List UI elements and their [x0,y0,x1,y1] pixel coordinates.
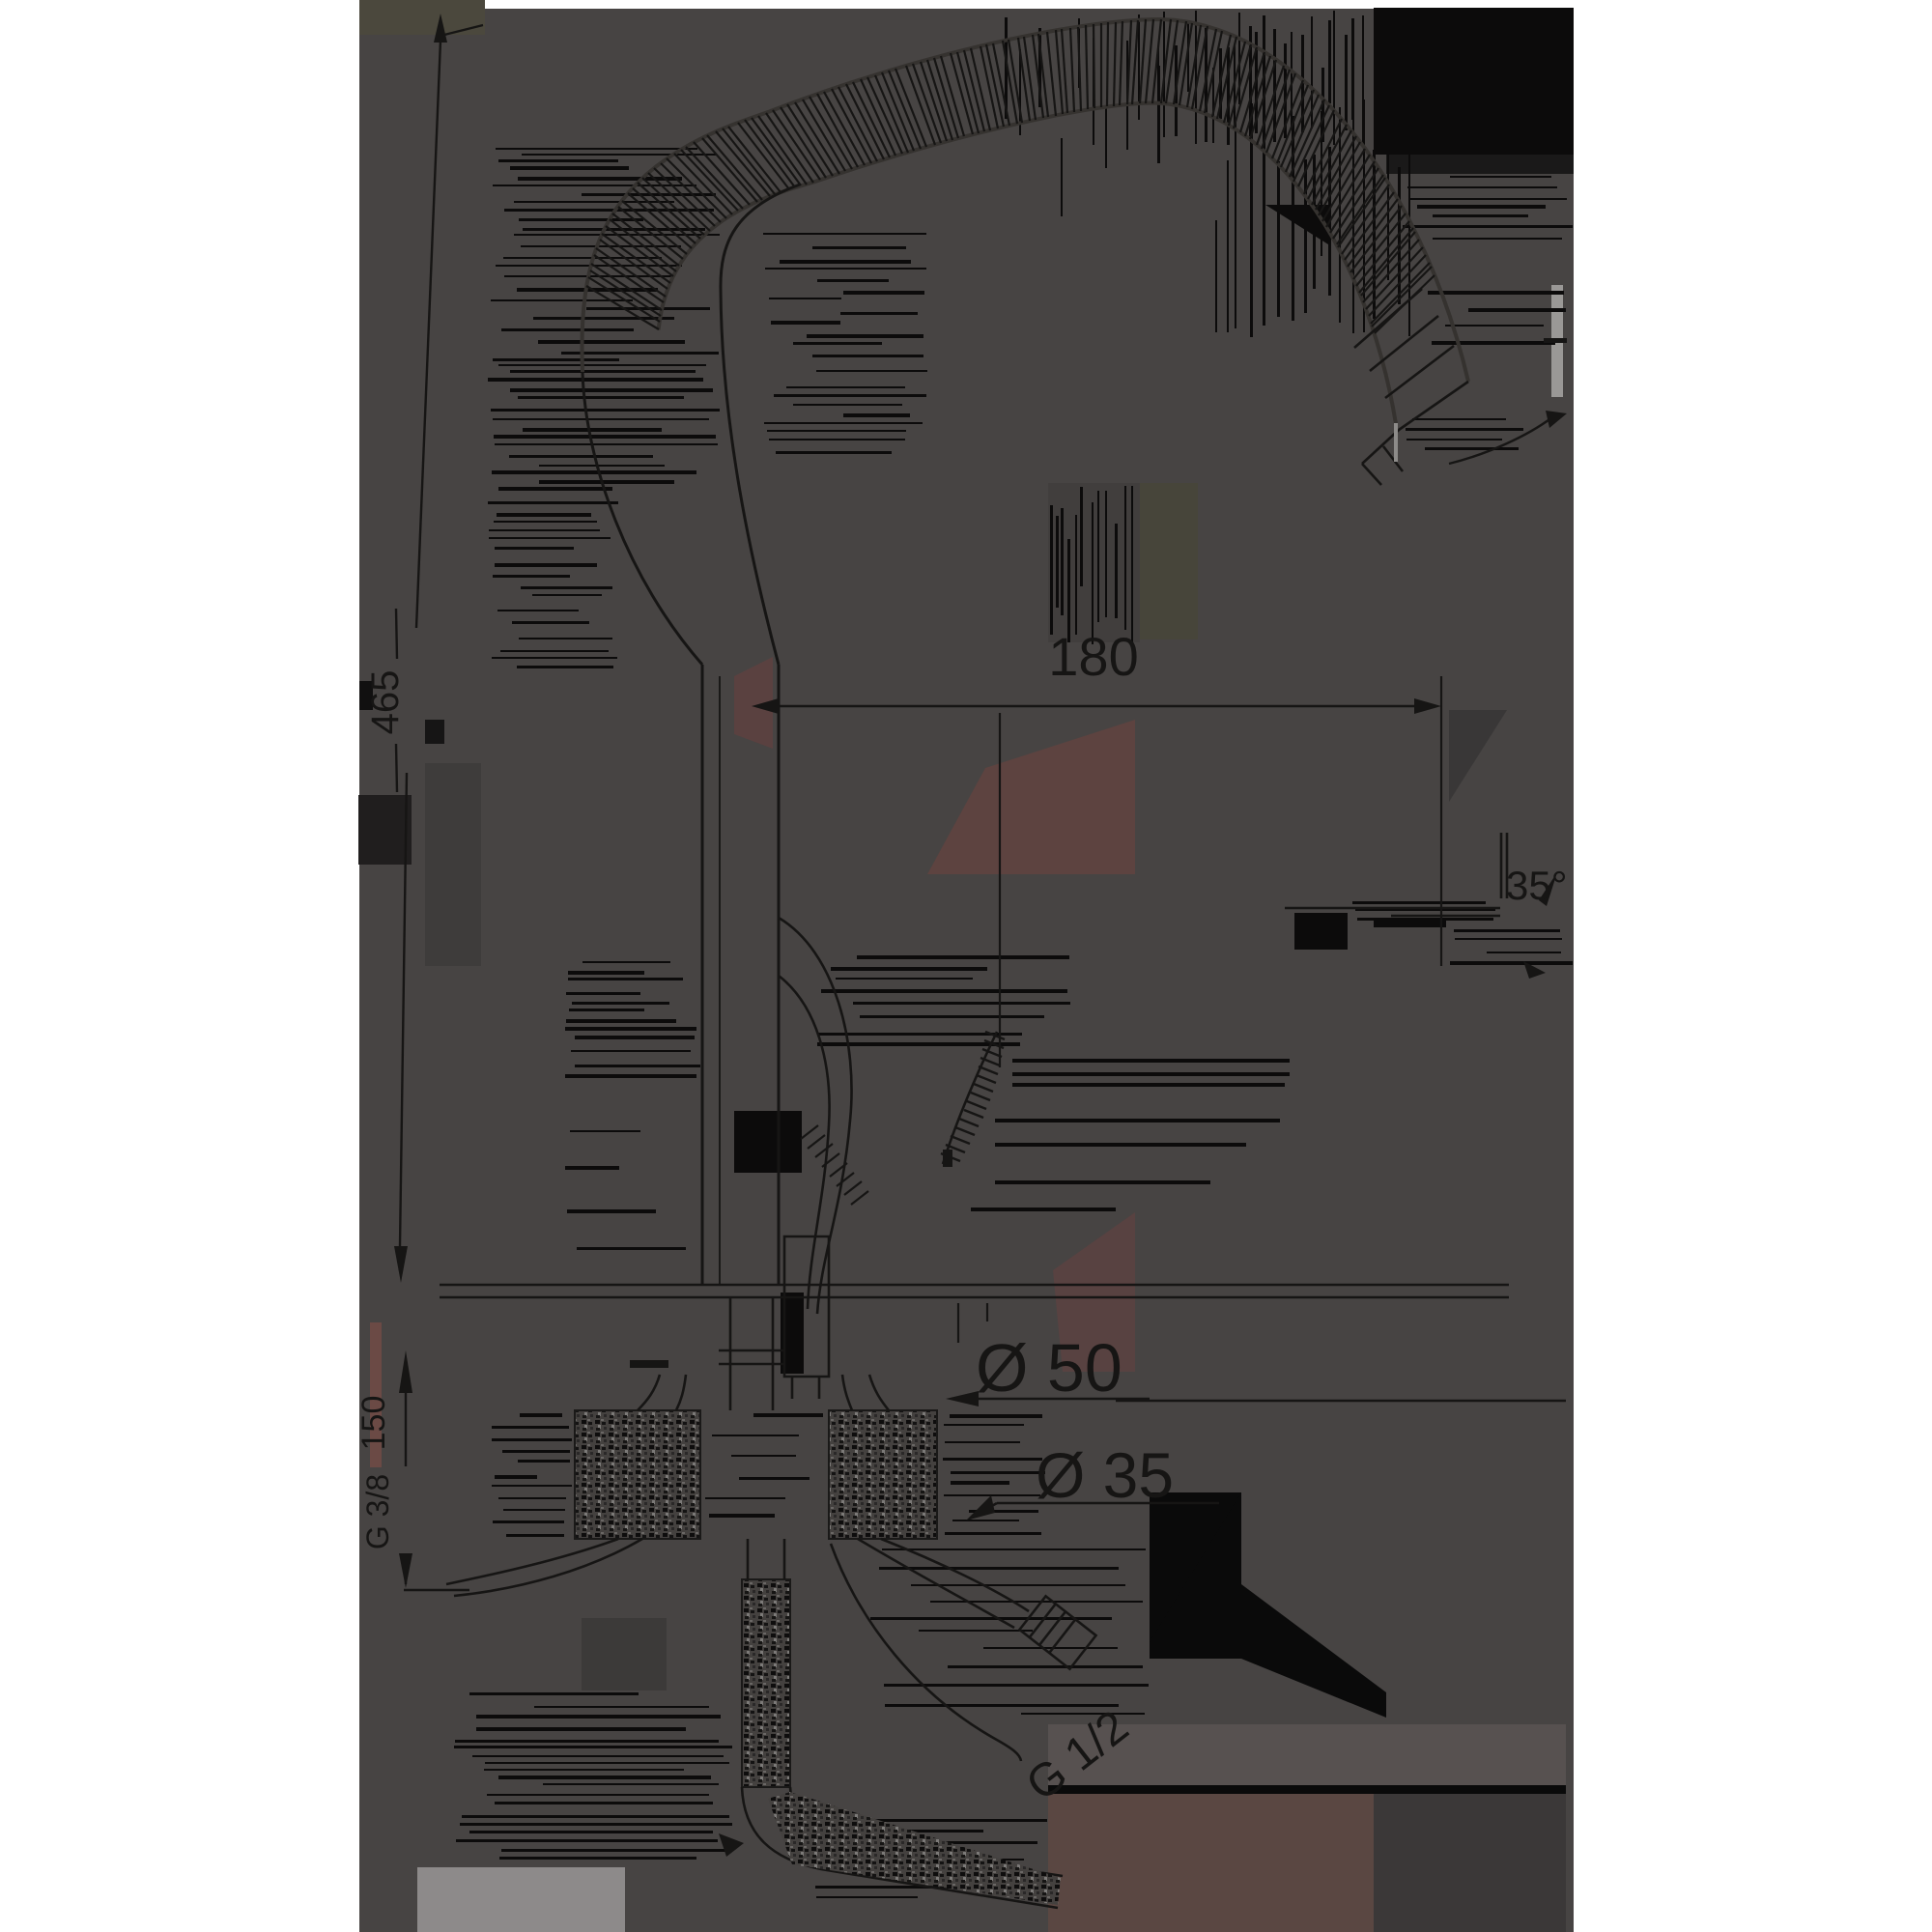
svg-text:Ø 35: Ø 35 [1036,1439,1174,1511]
svg-text:150: 150 [355,1396,392,1451]
svg-text:465: 465 [364,670,407,735]
svg-text:Ø 50: Ø 50 [976,1330,1122,1406]
svg-text:35°: 35° [1506,863,1568,908]
svg-text:G 3/8: G 3/8 [360,1474,395,1549]
svg-text:180: 180 [1048,626,1138,687]
